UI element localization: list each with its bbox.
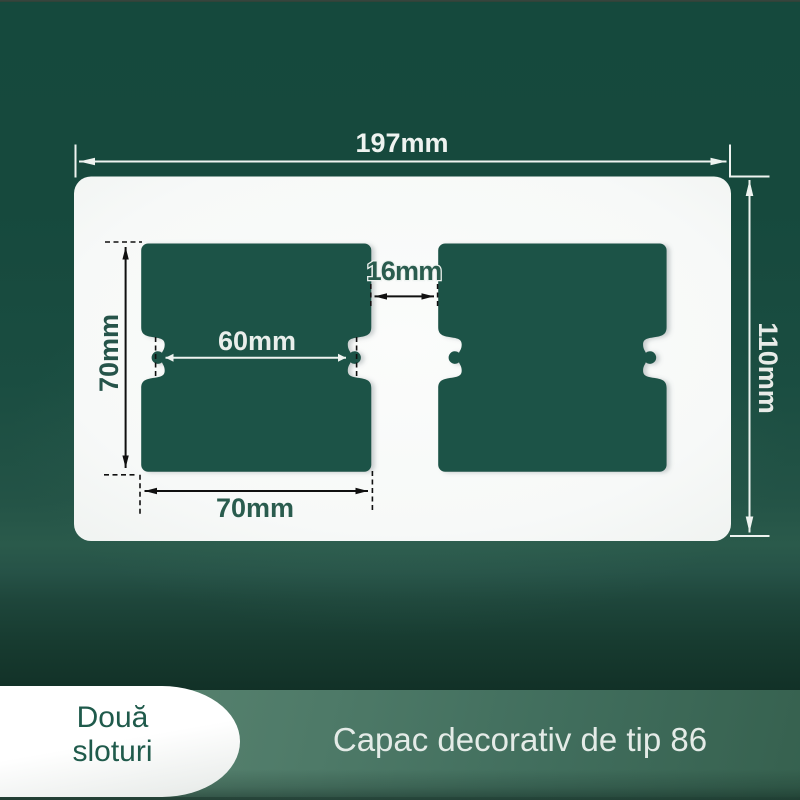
svg-text:70mm: 70mm [94, 314, 124, 392]
svg-text:197mm: 197mm [355, 128, 448, 158]
svg-text:70mm: 70mm [216, 493, 294, 523]
svg-text:110mm: 110mm [753, 322, 783, 414]
svg-text:16mm: 16mm [367, 256, 442, 286]
svg-text:60mm: 60mm [218, 326, 296, 356]
